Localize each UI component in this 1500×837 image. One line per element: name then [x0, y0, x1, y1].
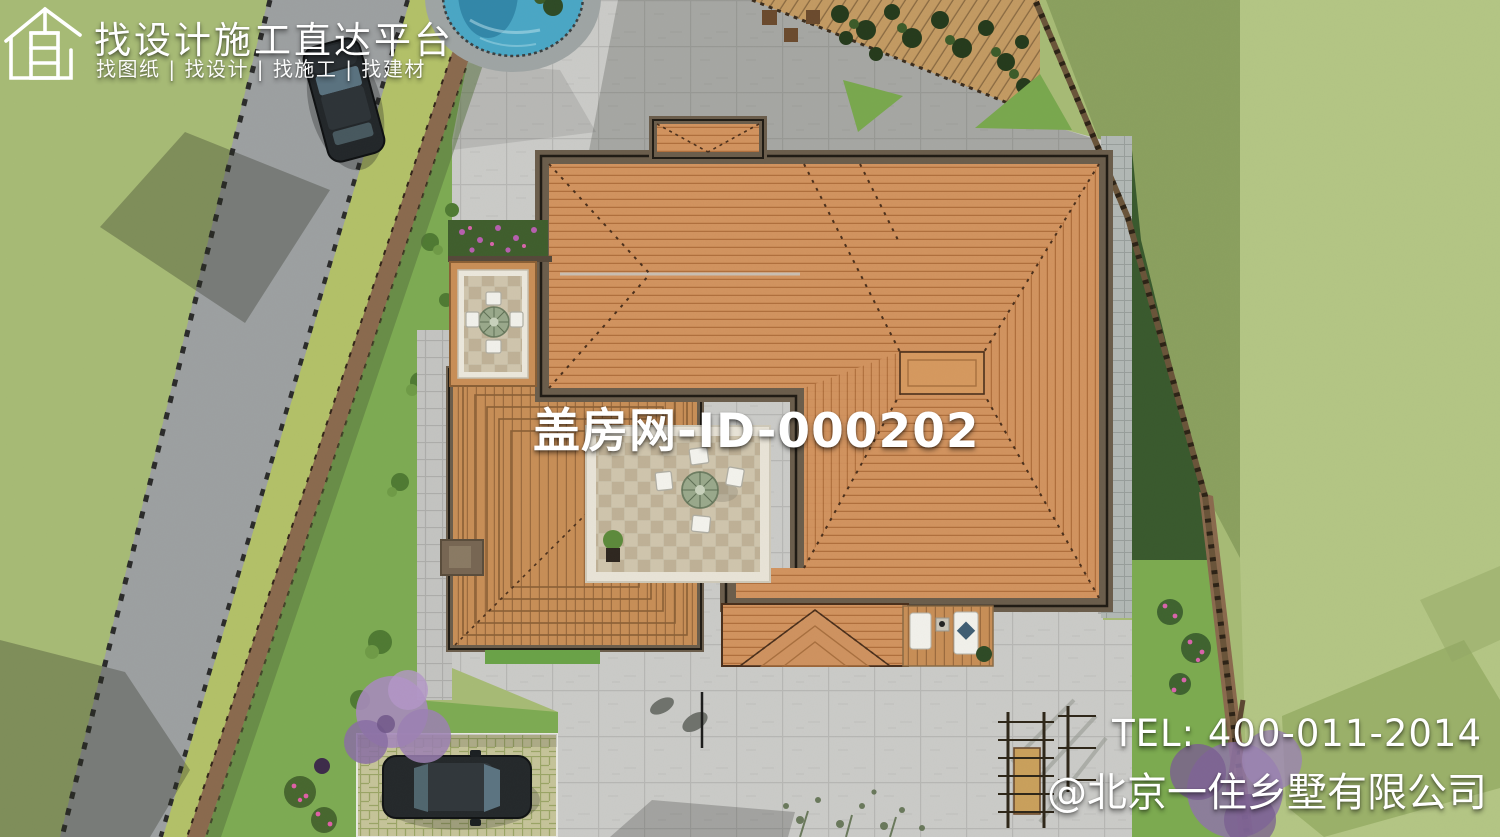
platform-subtitle: 找图纸 | 找设计 | 找施工 | 找建材: [96, 53, 426, 82]
house-outline-icon: [0, 0, 84, 88]
contact-tel: TEL: 400-011-2014: [1112, 712, 1482, 755]
aerial-villa-rendering: 找设计施工直达平台 找图纸 | 找设计 | 找施工 | 找建材 盖房网-ID-0…: [0, 0, 1500, 837]
center-id-watermark: 盖房网-ID-000202: [533, 392, 980, 461]
contact-company: @北京一住乡墅有限公司: [1047, 760, 1487, 818]
